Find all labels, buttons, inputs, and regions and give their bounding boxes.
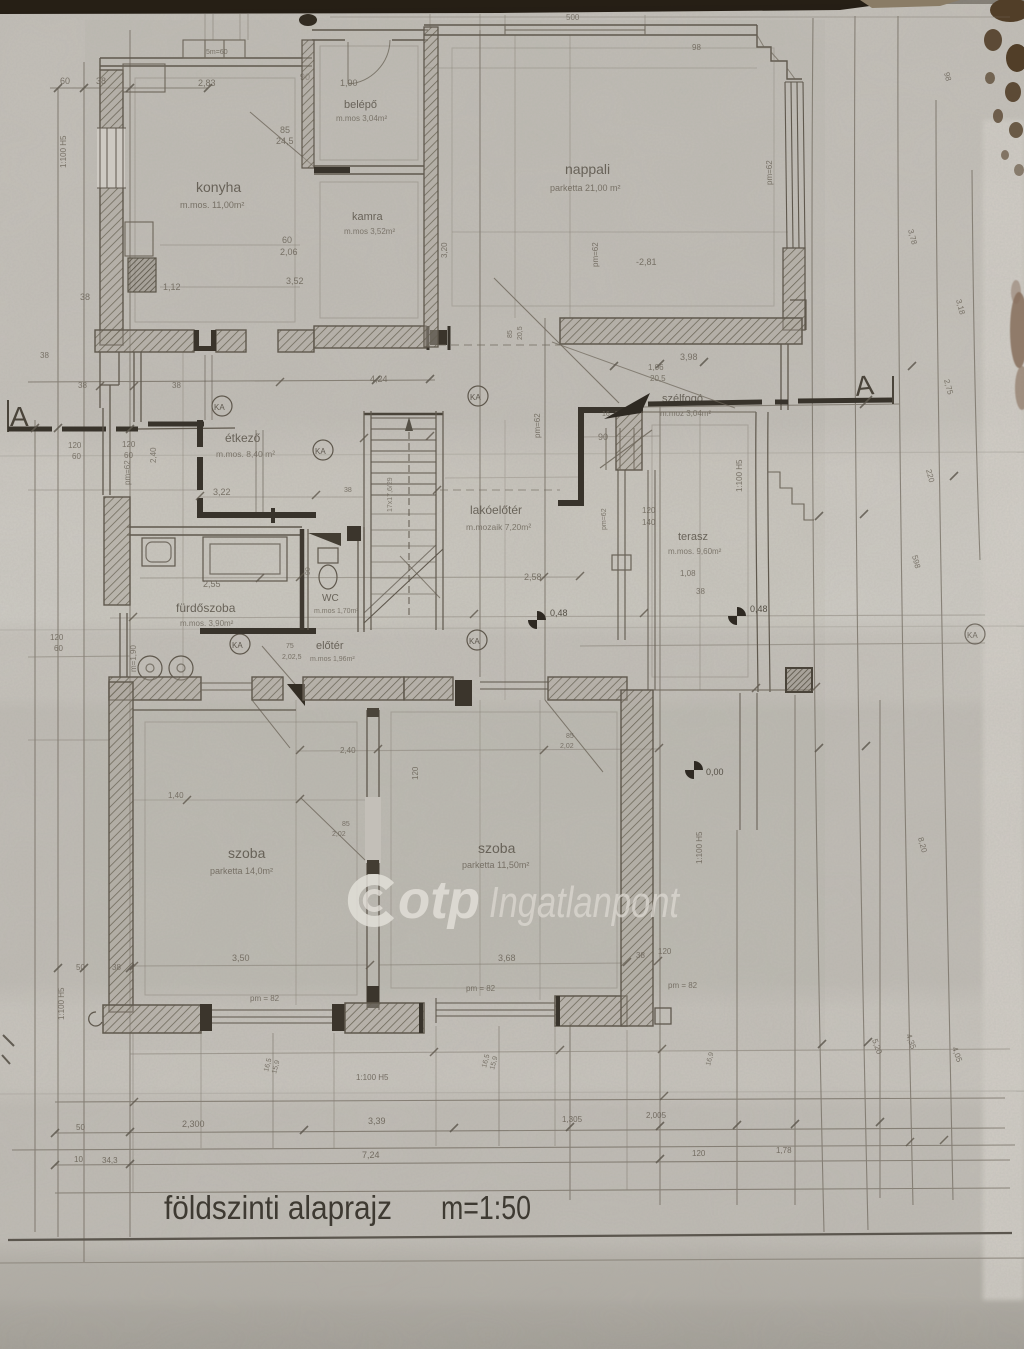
- svg-text:m.mos. 11,00m²: m.mos. 11,00m²: [180, 200, 244, 210]
- svg-text:50: 50: [76, 1123, 85, 1132]
- svg-text:120: 120: [692, 1149, 706, 1158]
- svg-text:parketta 14,0m²: parketta 14,0m²: [210, 866, 273, 876]
- svg-text:38: 38: [344, 487, 352, 494]
- svg-text:120: 120: [658, 947, 672, 956]
- svg-text:KA: KA: [967, 631, 978, 640]
- svg-text:2,300: 2,300: [182, 1119, 205, 1129]
- svg-text:38: 38: [636, 951, 645, 960]
- svg-text:60: 60: [54, 644, 63, 653]
- svg-text:m.moz 3,04m²: m.moz 3,04m²: [660, 409, 711, 418]
- svg-text:m.mos. 8,40 m²: m.mos. 8,40 m²: [216, 449, 275, 459]
- svg-text:2,02: 2,02: [560, 743, 574, 750]
- svg-text:KA: KA: [469, 637, 480, 646]
- svg-text:parketta 11,50m²: parketta 11,50m²: [462, 860, 529, 870]
- svg-text:140: 140: [642, 518, 656, 527]
- svg-text:pm=62: pm=62: [533, 413, 542, 438]
- svg-text:1,305: 1,305: [562, 1115, 583, 1124]
- svg-text:m=1,90: m=1,90: [129, 645, 138, 672]
- svg-text:0,48: 0,48: [750, 604, 768, 614]
- svg-text:2,02,5: 2,02,5: [282, 654, 302, 661]
- svg-text:1,12: 1,12: [163, 282, 181, 292]
- svg-text:belépő: belépő: [344, 99, 377, 111]
- svg-text:nappali: nappali: [565, 161, 610, 177]
- svg-text:34,3: 34,3: [102, 1156, 118, 1165]
- svg-text:1,78: 1,78: [776, 1146, 792, 1155]
- svg-text:otp: otp: [398, 870, 480, 930]
- svg-text:120: 120: [411, 766, 420, 780]
- svg-text:1,08: 1,08: [680, 569, 696, 578]
- svg-text:120: 120: [68, 441, 82, 450]
- svg-text:38: 38: [78, 381, 87, 390]
- svg-text:pm=62: pm=62: [765, 160, 774, 185]
- svg-text:17x17,6/29: 17x17,6/29: [387, 477, 394, 512]
- svg-text:3,39: 3,39: [368, 1116, 386, 1126]
- svg-text:120: 120: [122, 440, 136, 449]
- svg-text:85: 85: [280, 125, 290, 135]
- svg-text:60: 60: [124, 451, 133, 460]
- svg-text:75: 75: [286, 643, 294, 650]
- svg-text:1:100 H5: 1:100 H5: [57, 987, 66, 1020]
- svg-text:16: 16: [602, 411, 610, 418]
- svg-text:m=1:50: m=1:50: [441, 1189, 531, 1226]
- svg-text:85: 85: [342, 821, 350, 828]
- svg-text:1:100 H5: 1:100 H5: [735, 459, 744, 492]
- svg-text:terasz: terasz: [678, 531, 708, 543]
- svg-text:KA: KA: [470, 393, 481, 402]
- svg-text:2,83: 2,83: [198, 78, 216, 88]
- svg-text:KA: KA: [214, 403, 225, 412]
- svg-text:2,005: 2,005: [646, 1111, 667, 1120]
- svg-text:1:100 H5: 1:100 H5: [356, 1073, 389, 1082]
- svg-text:2,40: 2,40: [149, 447, 158, 463]
- svg-text:szoba: szoba: [228, 845, 266, 861]
- svg-text:98: 98: [692, 43, 701, 52]
- svg-text:1,40: 1,40: [168, 791, 184, 800]
- svg-text:m.mos 1,70m²: m.mos 1,70m²: [314, 608, 359, 615]
- svg-text:1:100 H5: 1:100 H5: [59, 135, 68, 168]
- svg-text:38: 38: [96, 76, 106, 86]
- svg-text:90: 90: [305, 567, 312, 575]
- svg-text:KA: KA: [315, 447, 326, 456]
- svg-text:KA: KA: [232, 641, 243, 650]
- svg-text:120: 120: [50, 633, 64, 642]
- svg-text:0,48: 0,48: [550, 608, 568, 618]
- svg-text:A: A: [853, 369, 875, 402]
- svg-text:pm = 82: pm = 82: [250, 994, 280, 1003]
- svg-text:3,68: 3,68: [498, 953, 516, 963]
- svg-text:3,52: 3,52: [286, 276, 304, 286]
- svg-text:38: 38: [696, 587, 705, 596]
- svg-text:m.mos. 9,60m²: m.mos. 9,60m²: [668, 547, 722, 556]
- svg-text:kamra: kamra: [352, 211, 383, 223]
- svg-text:m.mos 3,04m²: m.mos 3,04m²: [336, 114, 387, 123]
- svg-text:120: 120: [642, 506, 656, 515]
- svg-text:konyha: konyha: [196, 179, 241, 195]
- svg-text:-2,81: -2,81: [636, 257, 657, 267]
- svg-text:2,06: 2,06: [280, 247, 298, 257]
- svg-text:pm = 82: pm = 82: [668, 981, 698, 990]
- svg-text:24,5: 24,5: [276, 136, 294, 146]
- svg-text:m.mos. 3,90m²: m.mos. 3,90m²: [180, 619, 234, 628]
- svg-text:lakóelőtér: lakóelőtér: [470, 503, 522, 517]
- svg-text:pm=62: pm=62: [591, 242, 600, 267]
- svg-text:m.mos 3,52m²: m.mos 3,52m²: [344, 227, 395, 236]
- svg-text:5m=60: 5m=60: [206, 49, 228, 56]
- svg-text:2,55: 2,55: [203, 579, 221, 589]
- svg-text:WC: WC: [322, 593, 339, 604]
- svg-text:38: 38: [112, 963, 121, 972]
- svg-text:fürdőszoba: fürdőszoba: [176, 601, 236, 615]
- svg-text:60: 60: [282, 235, 292, 245]
- svg-text:10: 10: [74, 1155, 83, 1164]
- svg-text:földszinti alaprajz: földszinti alaprajz: [164, 1189, 392, 1226]
- svg-text:38: 38: [40, 351, 49, 360]
- svg-text:7,24: 7,24: [362, 1150, 380, 1160]
- svg-text:étkező: étkező: [225, 431, 261, 445]
- svg-text:60: 60: [72, 452, 81, 461]
- svg-text:2,40: 2,40: [340, 746, 356, 755]
- svg-text:500: 500: [566, 13, 580, 22]
- svg-text:2,58: 2,58: [524, 572, 542, 582]
- svg-text:előtér: előtér: [316, 640, 344, 652]
- svg-text:Ingatlanpont: Ingatlanpont: [489, 878, 680, 927]
- svg-text:m.mos 1,96m²: m.mos 1,96m²: [310, 656, 355, 663]
- svg-text:3,50: 3,50: [232, 953, 250, 963]
- svg-text:szoba: szoba: [478, 840, 516, 856]
- svg-text:1:100 H5: 1:100 H5: [695, 831, 704, 864]
- svg-text:85: 85: [507, 330, 514, 338]
- svg-text:3,98: 3,98: [680, 352, 698, 362]
- svg-text:0,00: 0,00: [706, 767, 724, 777]
- svg-text:pm=62: pm=62: [123, 460, 132, 485]
- svg-text:parketta 21,00 m²: parketta 21,00 m²: [550, 183, 621, 193]
- svg-text:pm=62: pm=62: [601, 508, 608, 530]
- svg-text:85: 85: [566, 733, 574, 740]
- svg-text:20,5: 20,5: [517, 326, 524, 340]
- svg-text:38: 38: [172, 381, 181, 390]
- svg-text:3,22: 3,22: [213, 487, 231, 497]
- svg-text:m.mozaik 7,20m²: m.mozaik 7,20m²: [466, 522, 531, 532]
- svg-text:3,20: 3,20: [440, 242, 449, 258]
- svg-text:pm = 82: pm = 82: [466, 984, 496, 993]
- svg-text:38: 38: [80, 292, 90, 302]
